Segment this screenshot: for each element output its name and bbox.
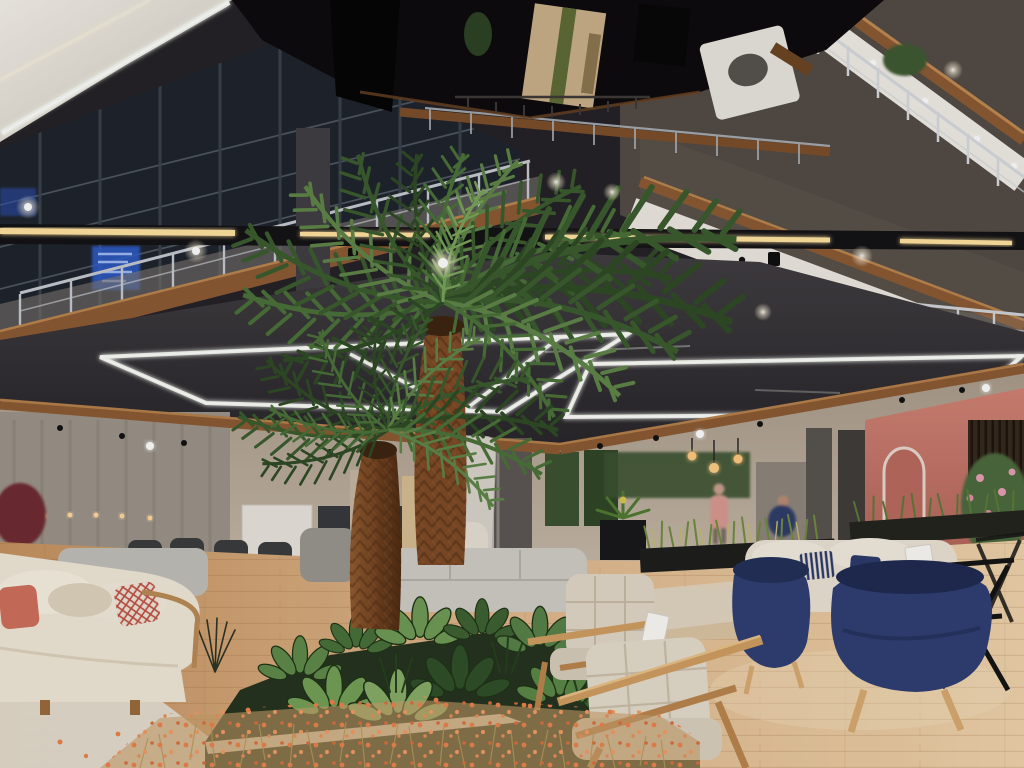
- showroom-photo: [0, 0, 1024, 768]
- vignette: [0, 0, 1024, 768]
- showroom-photo-svg: [0, 0, 1024, 768]
